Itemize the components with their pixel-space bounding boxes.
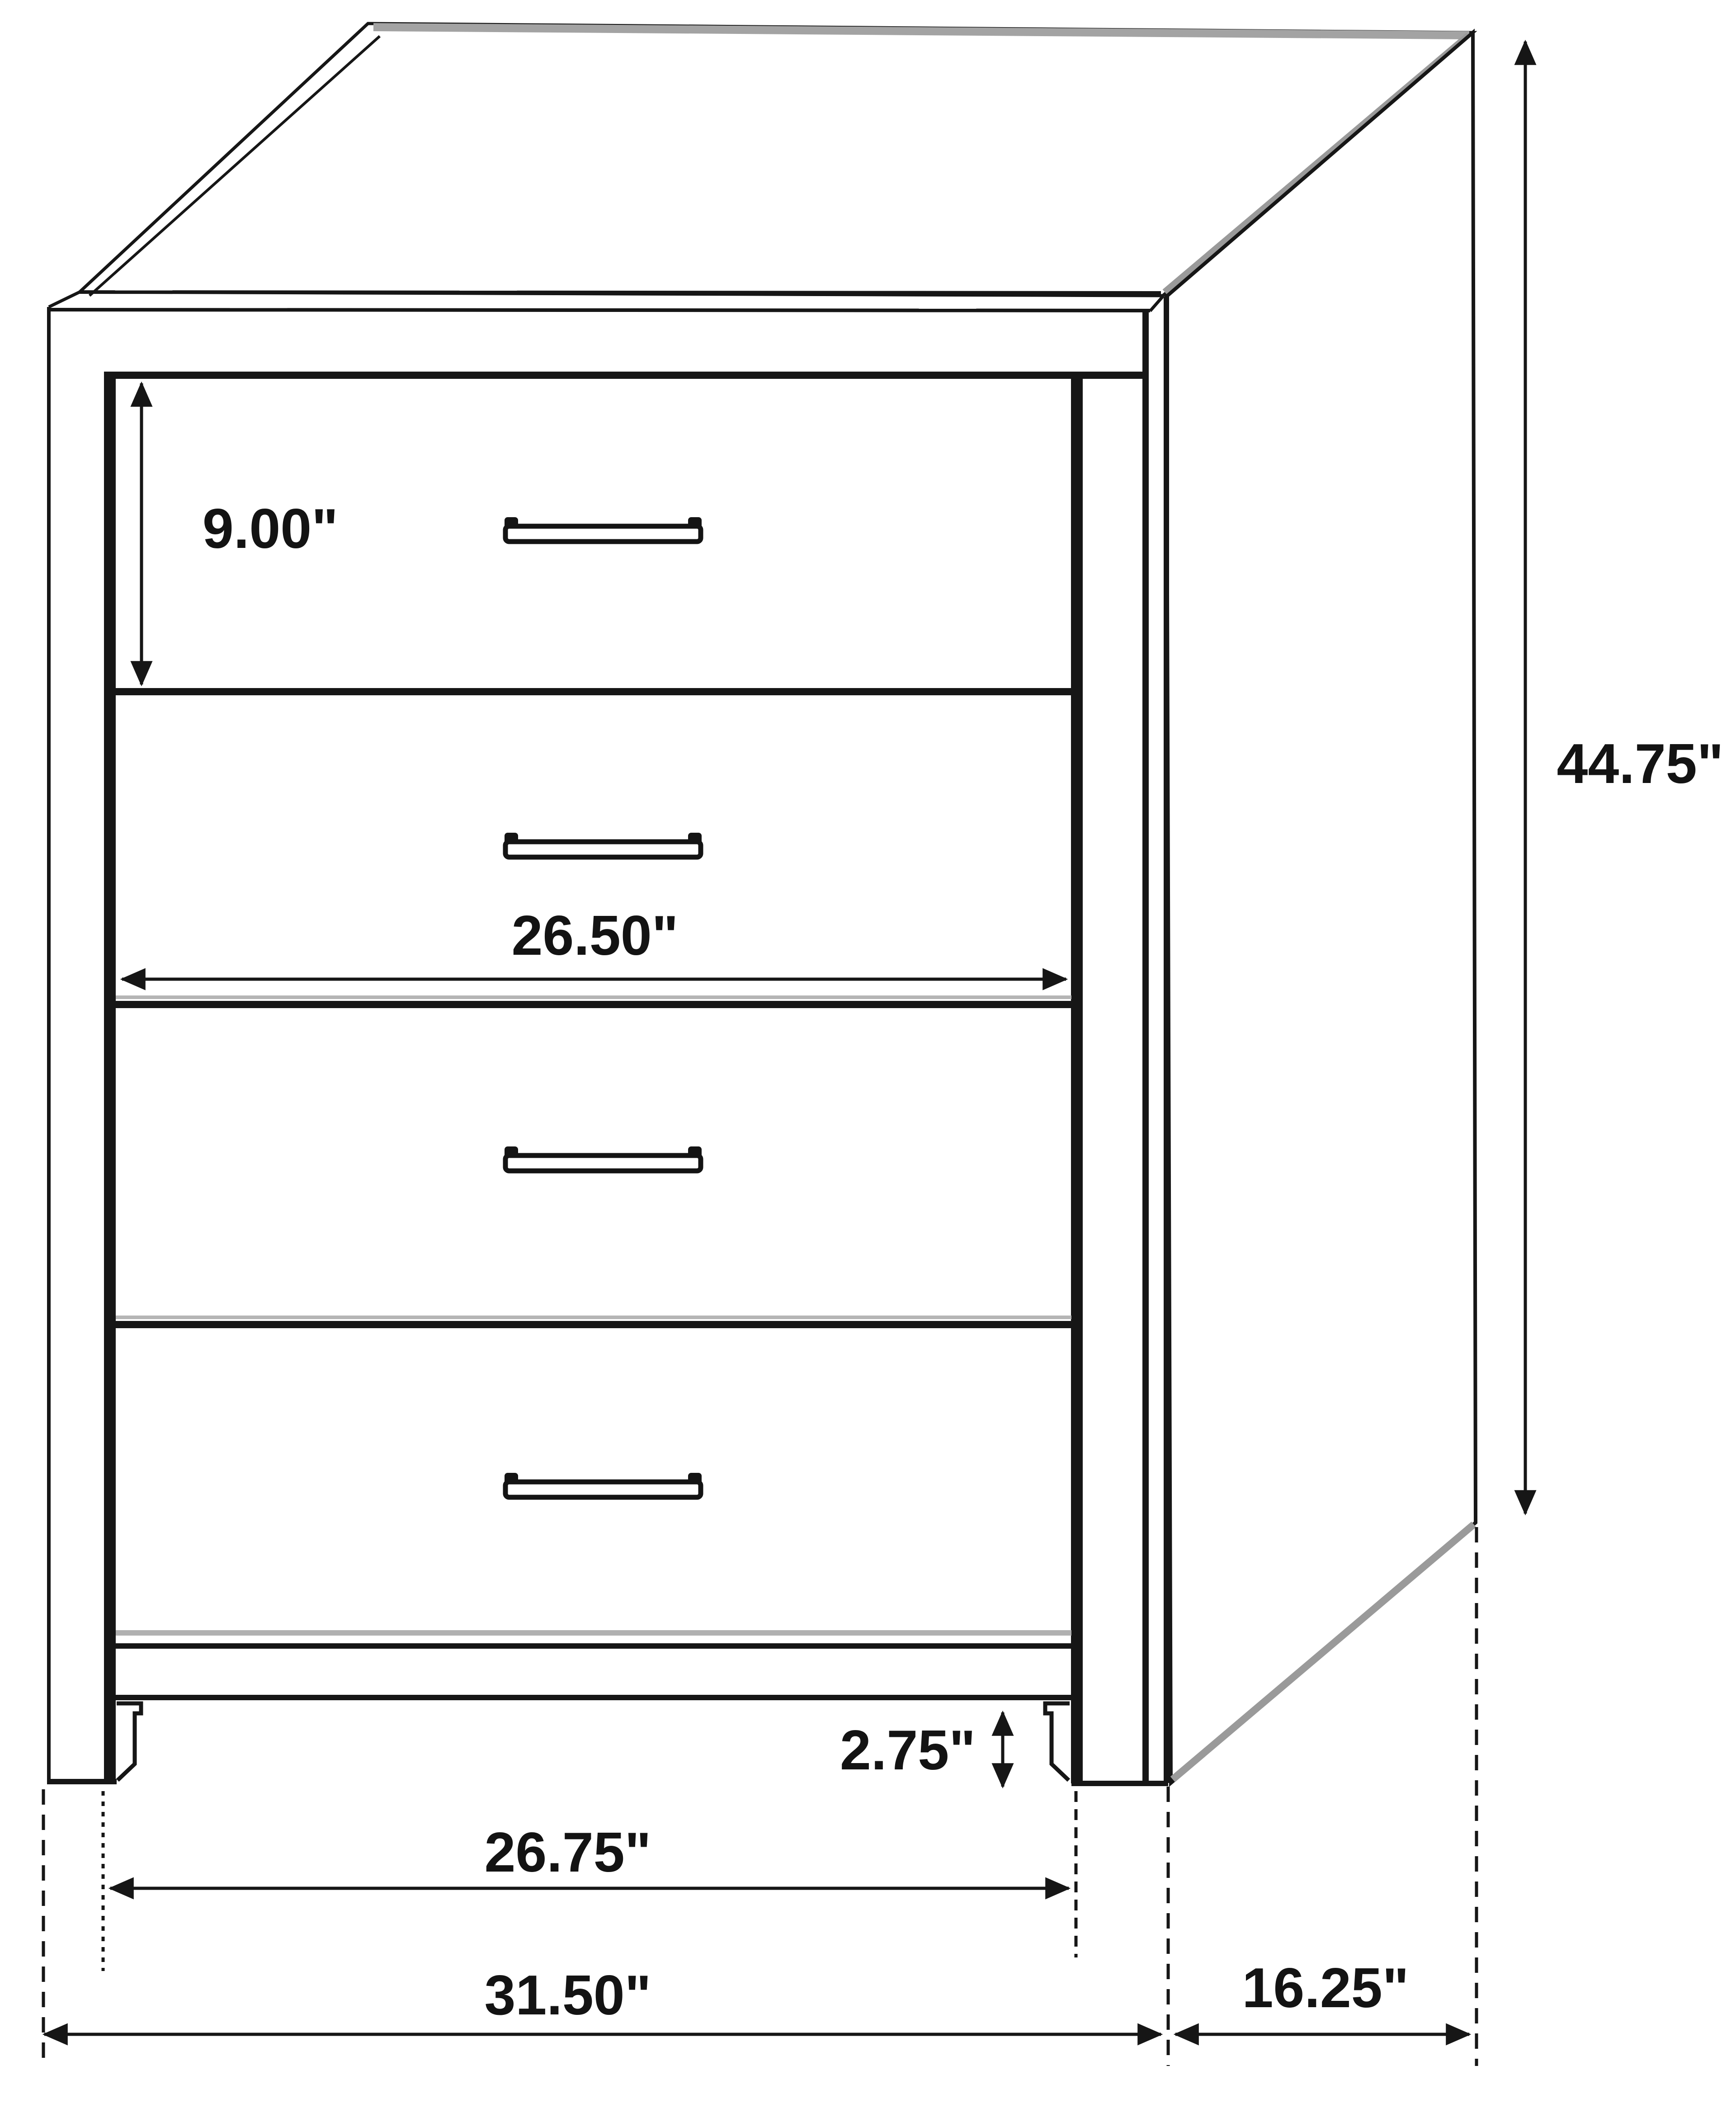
dim-label-overall-height: 44.75"	[1557, 733, 1723, 795]
front-top-right-bevel	[1150, 297, 1163, 311]
dim-label-overall-width: 31.50"	[484, 1964, 651, 2027]
dim-label-leg-height: 2.75"	[840, 1719, 976, 1782]
dim-overall-width: 31.50"	[44, 1964, 1161, 2034]
dimension-diagram-svg: 9.00" 26.50" 44.75" 2.75" 26.75" 31.50" …	[0, 0, 1736, 2108]
left-leg-bracket	[117, 1703, 141, 1780]
drawer-4-handle	[505, 1473, 702, 1497]
drawer-3-handle	[505, 1146, 702, 1171]
cabinet-side-panel	[1166, 33, 1476, 1783]
drawer-1-handle	[505, 517, 702, 542]
dim-overall-height: 44.75"	[1525, 42, 1724, 1514]
dim-inner-width: 26.75"	[110, 1821, 1069, 1888]
front-top-left-bevel	[49, 292, 80, 307]
cabinet-drawing	[47, 24, 1476, 1783]
dim-drawer-width: 26.50"	[122, 905, 1066, 979]
handle-bar	[505, 526, 701, 542]
front-top-inner-edge	[49, 310, 1150, 311]
dim-label-drawer-width: 26.50"	[511, 905, 678, 967]
dim-depth: 16.25"	[1175, 1957, 1469, 2034]
dim-leg-height: 2.75"	[840, 1712, 1003, 1787]
front-top-edge	[80, 292, 1161, 293]
dim-drawer-height: 9.00"	[142, 383, 338, 684]
dim-label-inner-width: 26.75"	[484, 1821, 651, 1884]
dim-label-depth: 16.25"	[1242, 1957, 1409, 2019]
dimension-diagram-page: 9.00" 26.50" 44.75" 2.75" 26.75" 31.50" …	[0, 0, 1736, 2108]
handle-bar	[505, 842, 701, 857]
drawer-2-handle	[505, 833, 702, 857]
handle-bar	[505, 1155, 701, 1171]
right-leg-bracket	[1045, 1703, 1070, 1780]
dim-label-drawer-height: 9.00"	[203, 498, 338, 560]
handle-bar	[505, 1482, 701, 1497]
